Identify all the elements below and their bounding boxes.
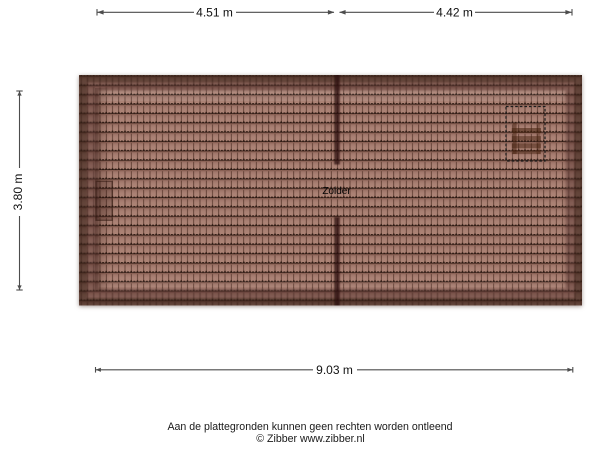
svg-text:4.42 m: 4.42 m <box>436 5 473 19</box>
svg-text:Zolder: Zolder <box>322 186 351 197</box>
svg-text:© Zibber www.zibber.nl: © Zibber www.zibber.nl <box>256 433 365 445</box>
svg-text:9.03 m: 9.03 m <box>316 363 353 377</box>
svg-text:4.51 m: 4.51 m <box>196 5 233 19</box>
svg-text:3.80 m: 3.80 m <box>11 174 25 211</box>
svg-text:Aan de plattegronden kunnen ge: Aan de plattegronden kunnen geen rechten… <box>167 421 452 433</box>
